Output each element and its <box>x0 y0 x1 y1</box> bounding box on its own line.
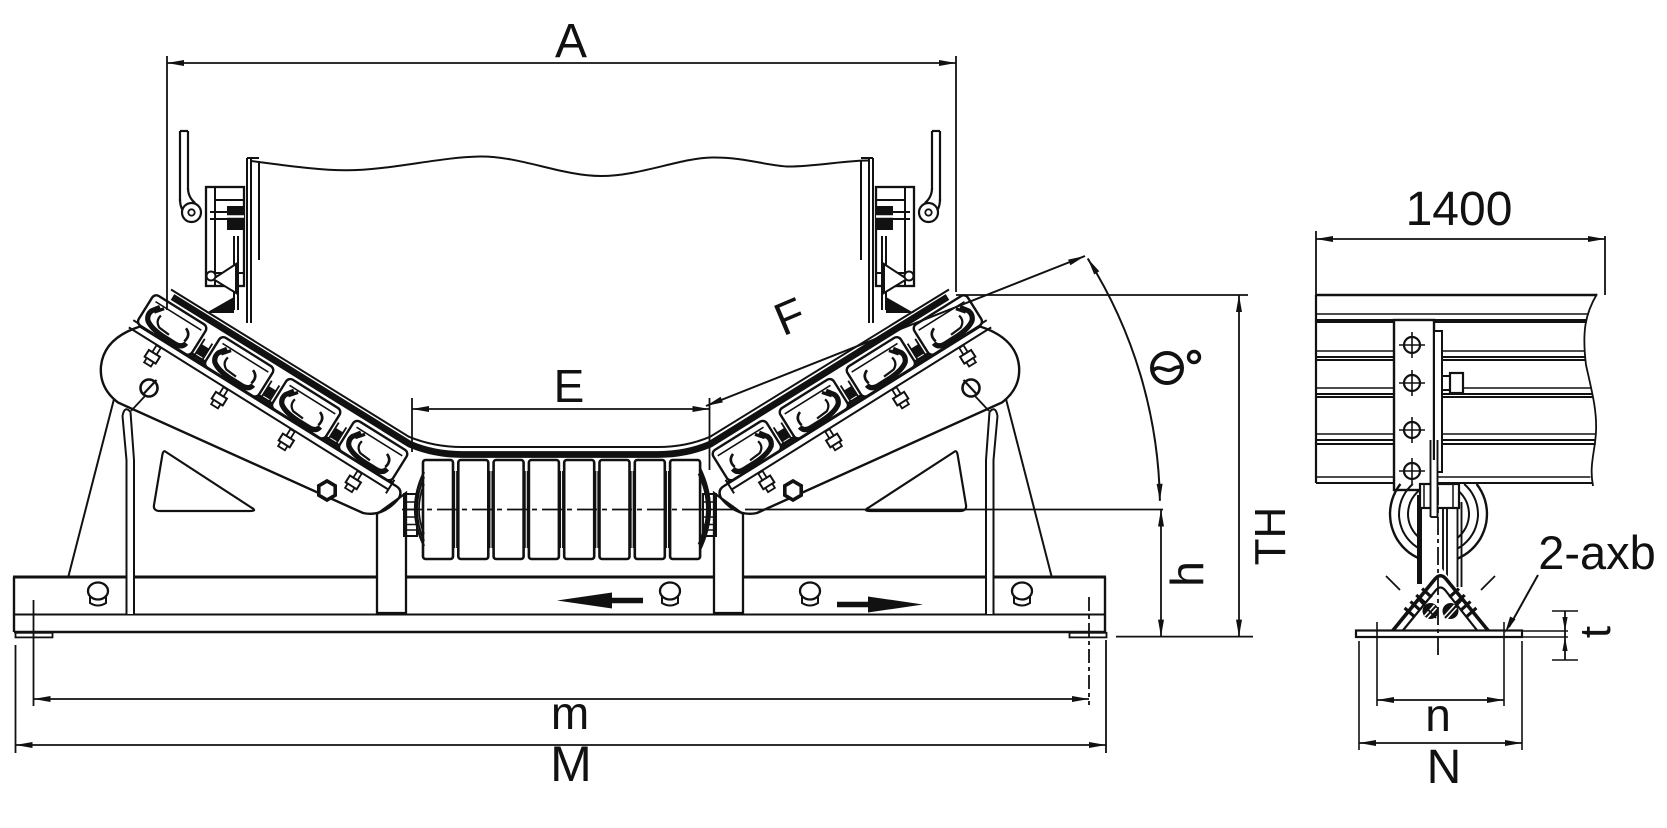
svg-text:h: h <box>1161 561 1213 587</box>
svg-text:1400: 1400 <box>1406 183 1513 236</box>
svg-text:t: t <box>1571 626 1620 638</box>
svg-text:m: m <box>551 687 589 739</box>
svg-text:N: N <box>1427 741 1462 794</box>
svg-text:2-axb: 2-axb <box>1538 526 1656 579</box>
svg-text:E: E <box>554 360 585 412</box>
svg-text:TH: TH <box>1246 507 1295 566</box>
svg-text:M: M <box>550 736 592 792</box>
svg-text:A: A <box>555 15 587 68</box>
svg-text:n: n <box>1425 689 1451 741</box>
